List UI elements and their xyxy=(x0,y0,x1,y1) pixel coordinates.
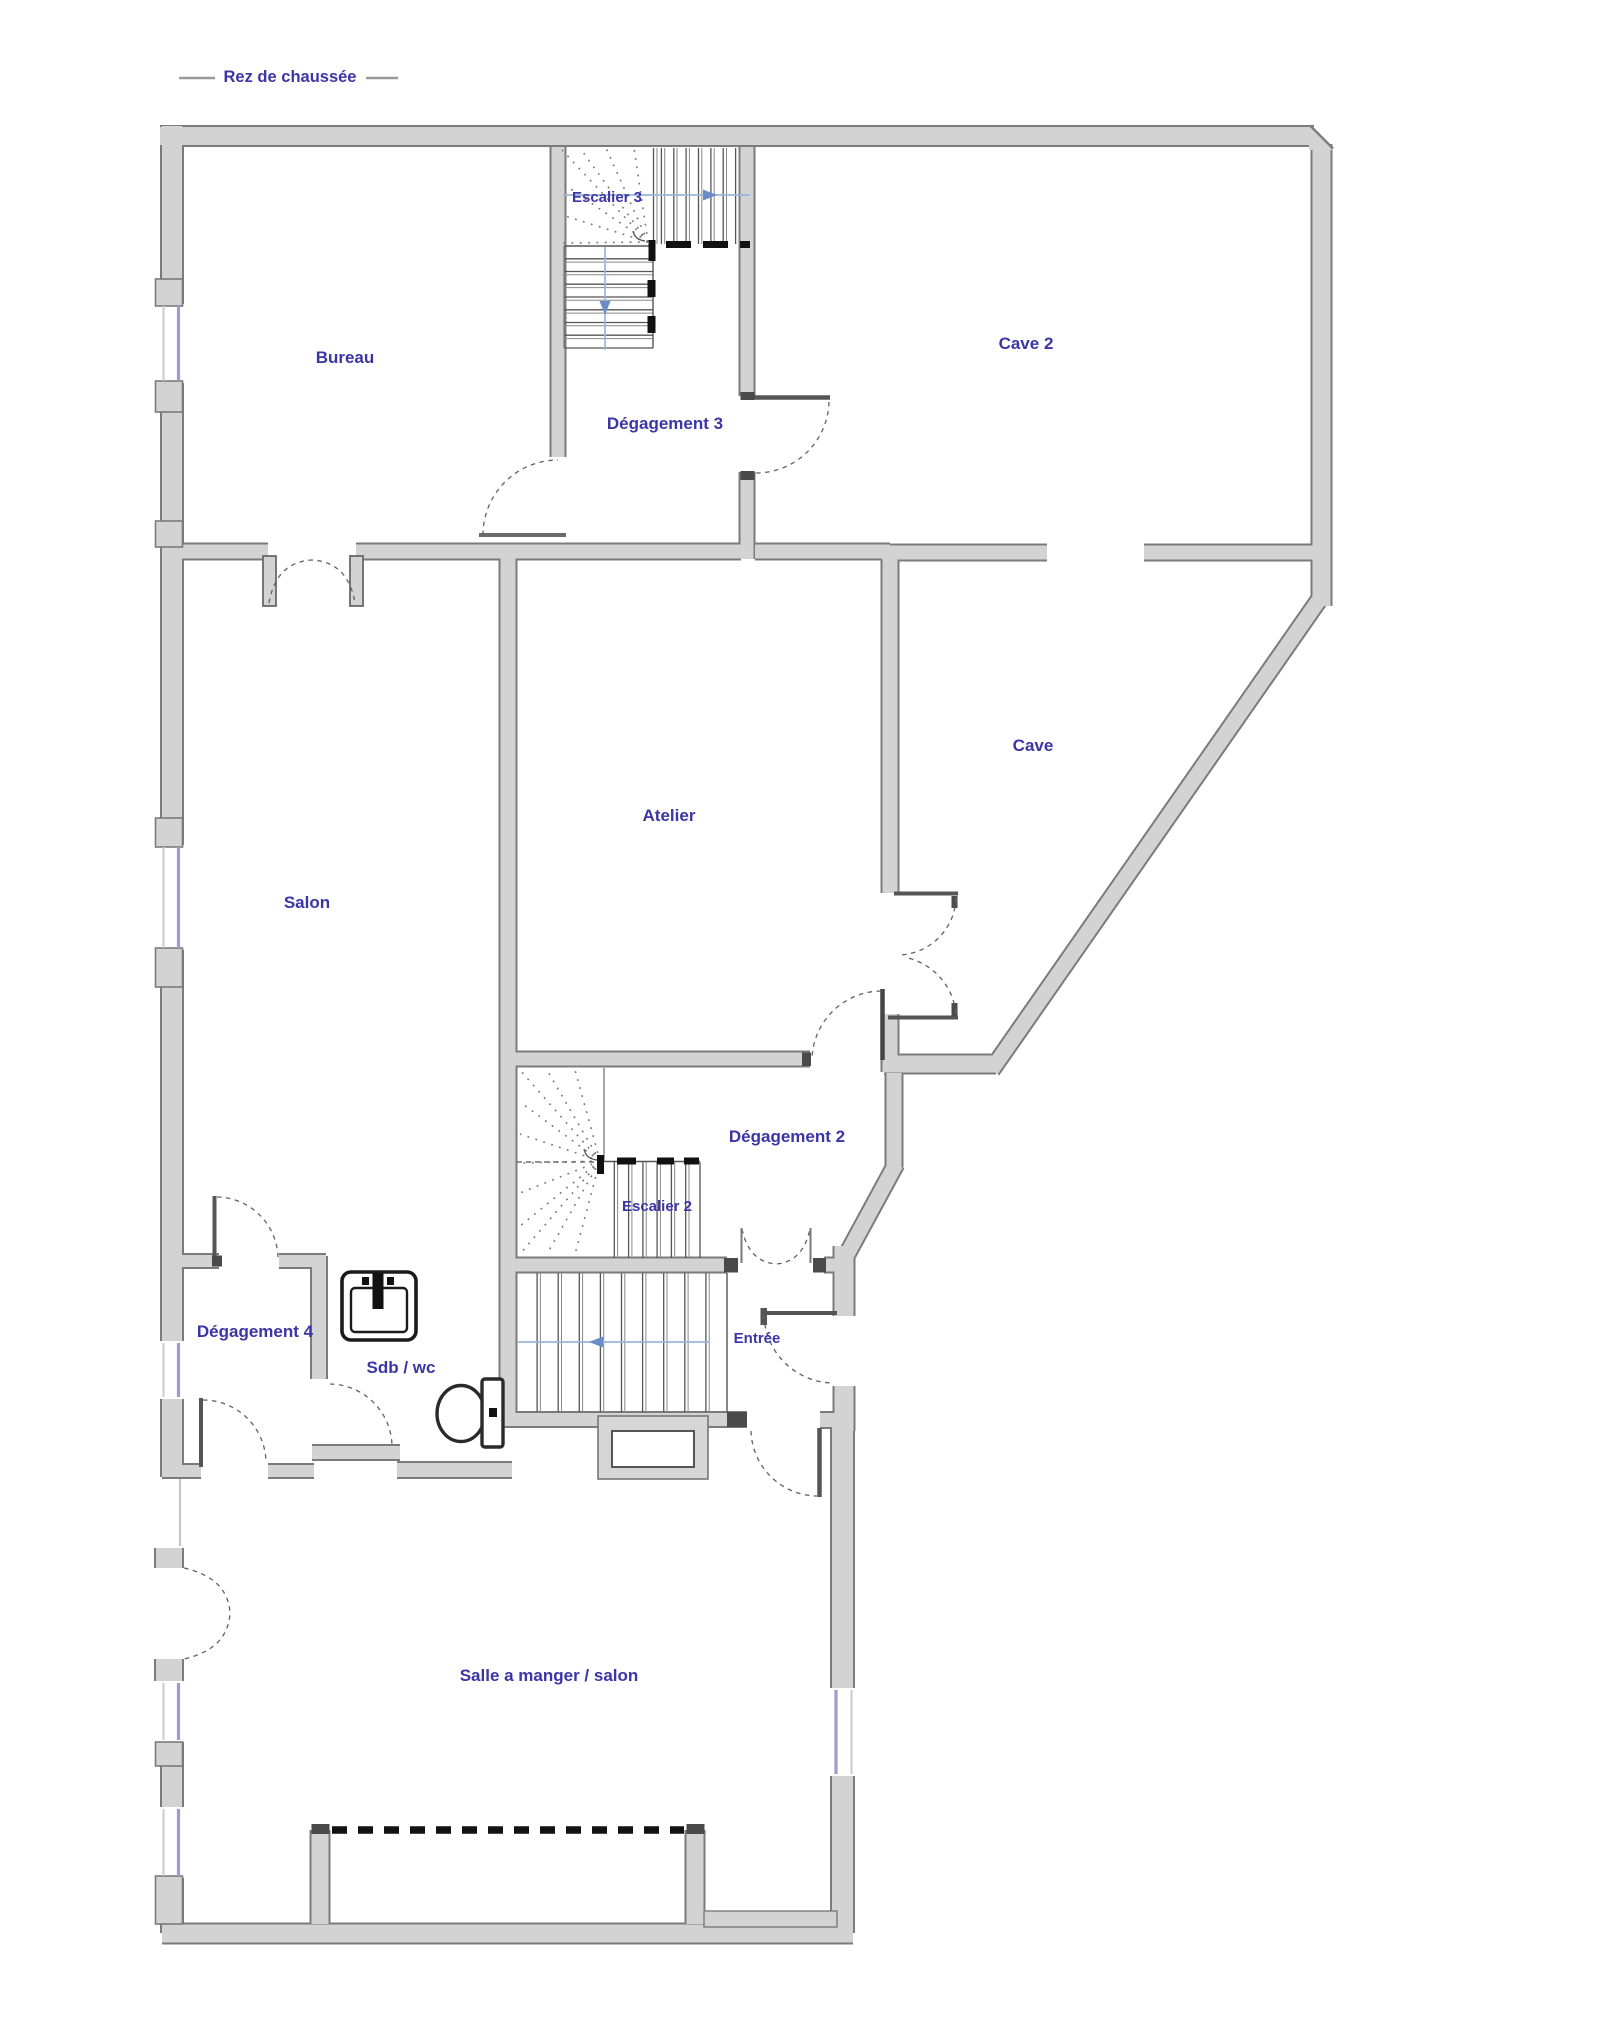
svg-text:Salle a manger / salon: Salle a manger / salon xyxy=(460,1666,639,1685)
svg-text:Dégagement 3: Dégagement 3 xyxy=(607,414,723,433)
svg-text:Entrée: Entrée xyxy=(734,1330,781,1347)
svg-text:Escalier 2: Escalier 2 xyxy=(622,1198,692,1215)
svg-text:Sdb / wc: Sdb / wc xyxy=(367,1358,436,1377)
svg-text:Dégagement 4: Dégagement 4 xyxy=(197,1322,314,1341)
svg-text:Cave 2: Cave 2 xyxy=(999,334,1054,353)
svg-text:Atelier: Atelier xyxy=(643,806,696,825)
svg-text:Salon: Salon xyxy=(284,893,330,912)
svg-text:Rez de chaussée: Rez de chaussée xyxy=(224,68,357,86)
svg-text:Escalier 3: Escalier 3 xyxy=(572,189,642,206)
svg-text:Bureau: Bureau xyxy=(316,348,375,367)
svg-text:Cave: Cave xyxy=(1013,736,1054,755)
svg-text:Dégagement 2: Dégagement 2 xyxy=(729,1127,845,1146)
